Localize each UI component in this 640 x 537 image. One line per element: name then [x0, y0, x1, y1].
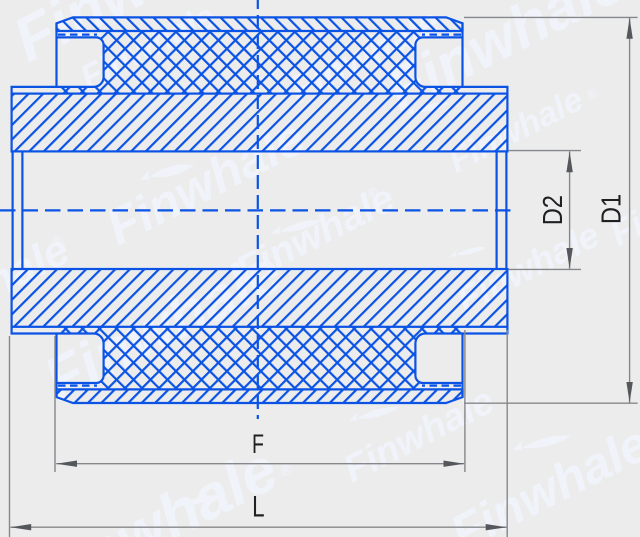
svg-text:F: F — [252, 429, 264, 459]
svg-text:D2: D2 — [538, 195, 568, 225]
svg-text:L: L — [252, 490, 264, 524]
svg-text:D1: D1 — [597, 194, 627, 224]
